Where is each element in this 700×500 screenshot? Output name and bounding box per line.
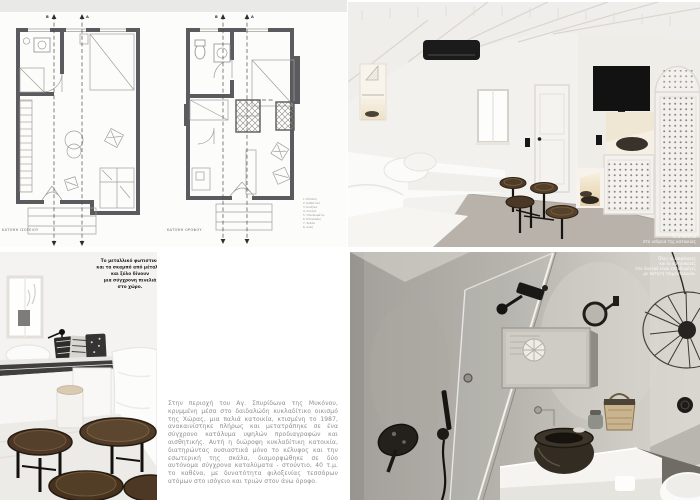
wall-tv [593,66,650,116]
bathroom-photo: Όλες οι επιφάνειες και οι κατασκευές στο… [350,252,700,500]
lattice-wardrobe [655,67,700,238]
svg-text:στο ισόγειο της κατοικίας: στο ισόγειο της κατοικίας [643,239,696,244]
shower-valve [464,374,472,382]
stools-detail-photo: Το μεταλλικό φωτιστικό και τα σκαμπό από… [0,252,157,500]
mirror [502,328,598,388]
svg-text:με πατητή τσιμεντοκονία.: με πατητή τσιμεντοκονία. [643,271,696,276]
wall-socket [596,135,602,145]
svg-text:στο χώρο.: στο χώρο. [118,283,143,290]
article-text-column: Στην περιοχή του Αγ. Σπυρίδωνα της Μυκόν… [157,252,347,500]
studio-room-photo: Το στούντιο στο ισόγειο της κατοικίας [348,2,700,247]
plan-legend: 1. Είσοδος 2. Καθιστικό 3. Κουζίνα 4. Λο… [303,197,325,229]
lattice-cabinet [604,155,654,214]
section-letter-b: B [46,15,49,19]
floor-plan-upper: B A ΚΑΤΟΨΗ ΟΡΟΦΟΥ 1. Είσοδος 2. Καθιστικ… [167,14,325,244]
straw-basket [604,394,635,430]
section-letter-a-upper: A [251,15,254,19]
fireplace-niche-upper [606,112,654,154]
svg-text:και τα σκαμπό από μέταλλο: και τα σκαμπό από μέταλλο [96,264,157,271]
jar [588,410,603,429]
fireplace [576,168,604,208]
window-bl [8,277,42,337]
air-conditioner [423,40,480,60]
svg-text:μια σύγχρονη πινελιά: μια σύγχρονη πινελιά [104,277,157,284]
svg-text:Το μεταλλικό φωτιστικό: Το μεταλλικό φωτιστικό [101,257,157,264]
section-letter-a: A [86,15,89,19]
door [535,85,569,192]
door-handle [538,137,542,141]
wall-niche-shelves [360,64,386,120]
ground-floor-label: ΚΑΤΟΨΗ ΙΣΟΓΕΙΟΥ [2,228,39,232]
stone-basin [534,429,594,475]
magazine-spread: B A ΚΑΤΟΨΗ ΙΣΟΓΕΙΟΥ [0,0,700,500]
drum-table [57,386,83,429]
flush-button [677,397,693,413]
floor-plan-ground: B A ΚΑΤΟΨΗ ΙΣΟΓΕΙΟΥ [2,14,138,246]
article-body: Στην περιοχή του Αγ. Σπυρίδωνα της Μυκόν… [168,400,338,486]
shell-dish [573,427,585,432]
upper-floor-label: ΚΑΤΟΨΗ ΟΡΟΦΟΥ [167,228,202,232]
section-letter-b-upper: B [215,15,218,19]
shell-ornament [523,339,545,361]
light-switch [525,138,530,147]
floor-plans-drawing: B A ΚΑΤΟΨΗ ΙΣΟΓΕΙΟΥ [0,0,347,247]
svg-text:8. Αυλή: 8. Αυλή [303,225,313,229]
floor-plans-panel: B A ΚΑΤΟΨΗ ΙΣΟΓΕΙΟΥ [0,0,347,247]
svg-text:και ξύλο δίνουν: και ξύλο δίνουν [111,270,149,277]
window [476,90,510,145]
